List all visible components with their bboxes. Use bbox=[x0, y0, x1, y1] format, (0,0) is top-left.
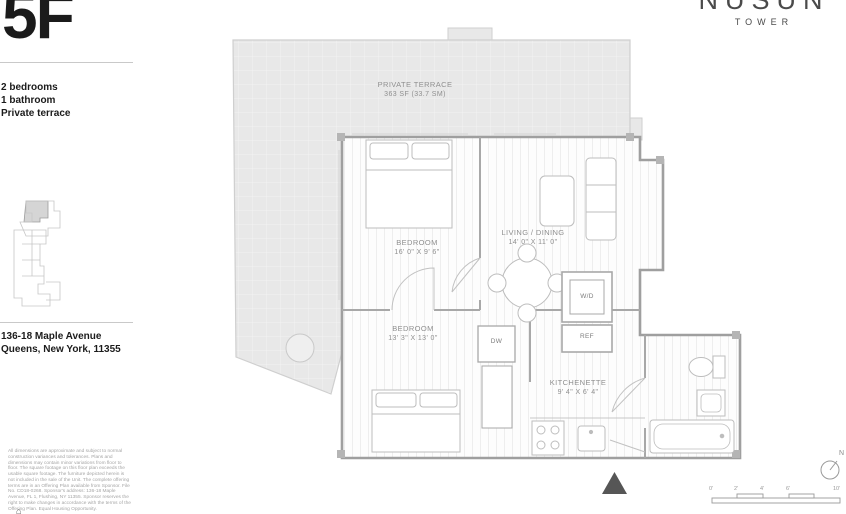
living-dining-label: LIVING / DINING 14' 0" X 11' 0" bbox=[468, 228, 598, 248]
bedroom2-bed bbox=[372, 390, 460, 452]
legal-disclaimer: All dimensions are approximate and subje… bbox=[8, 449, 132, 512]
terrace-label: PRIVATE TERRACE 363 SF (33.7 SM) bbox=[330, 80, 500, 100]
terrace-table bbox=[286, 334, 314, 362]
washer-dryer-label: W/D bbox=[562, 293, 612, 300]
room-dims: 13' 3" X 13' 0" bbox=[348, 334, 478, 343]
terrace-area: 363 SF (33.7 SM) bbox=[330, 90, 500, 99]
keyplan-unit-highlight bbox=[24, 201, 48, 222]
kitchenette-label: KITCHENETTE 9' 4" X 6' 4" bbox=[513, 378, 643, 398]
summary-bedrooms: 2 bedrooms bbox=[1, 81, 71, 94]
scale-tick: 6' bbox=[786, 486, 790, 492]
bedroom1-bed bbox=[366, 140, 452, 228]
hall-closet bbox=[482, 366, 512, 428]
unit-summary: 2 bedrooms 1 bathroom Private terrace bbox=[1, 81, 71, 121]
divider bbox=[0, 322, 133, 323]
bedroom2-label: BEDROOM 13' 3" X 13' 0" bbox=[348, 324, 478, 344]
brand-lockup: NUSUN TOWER bbox=[688, 0, 840, 27]
lounge-chair bbox=[540, 176, 574, 226]
scale-tick: 10' bbox=[833, 486, 840, 492]
floorplan-page: PRIVATE TERRACE 363 SF (33.7 SM) BEDROOM… bbox=[0, 0, 846, 514]
entry-arrow bbox=[602, 472, 627, 494]
room-name: LIVING / DINING bbox=[468, 228, 598, 238]
scale-bar bbox=[712, 494, 840, 503]
building-address: 136-18 Maple Avenue Queens, New York, 11… bbox=[1, 330, 121, 356]
wd-closet bbox=[562, 272, 612, 352]
scale-tick: 2' bbox=[734, 486, 738, 492]
room-name: BEDROOM bbox=[352, 238, 482, 248]
stove bbox=[532, 421, 564, 455]
keyplan-diagram bbox=[6, 192, 64, 312]
toilet bbox=[689, 358, 713, 377]
kitchen-sink bbox=[578, 426, 605, 451]
brand-name: NUSUN bbox=[688, 0, 840, 14]
bedroom1-label: BEDROOM 16' 0" X 9' 6" bbox=[352, 238, 482, 258]
room-name: BEDROOM bbox=[348, 324, 478, 334]
summary-terrace: Private terrace bbox=[1, 107, 71, 120]
room-name: KITCHENETTE bbox=[513, 378, 643, 388]
equal-housing-icon: ⌂ bbox=[16, 507, 21, 514]
brand-subtitle: TOWER bbox=[688, 17, 840, 27]
unit-number: 5F bbox=[2, 0, 73, 48]
compass-icon bbox=[821, 461, 839, 479]
refrigerator-label: REF bbox=[562, 333, 612, 340]
scale-tick: 4' bbox=[760, 486, 764, 492]
dishwasher-label: DW bbox=[478, 338, 515, 345]
room-dims: 14' 0" X 11' 0" bbox=[468, 238, 598, 247]
room-dims: 16' 0" X 9' 6" bbox=[352, 248, 482, 257]
scale-tick: 0' bbox=[709, 486, 713, 492]
address-city: Queens, New York, 11355 bbox=[1, 343, 121, 356]
divider bbox=[0, 62, 133, 63]
compass-north-label: N bbox=[839, 450, 844, 457]
address-street: 136-18 Maple Avenue bbox=[1, 330, 121, 343]
summary-bathrooms: 1 bathroom bbox=[1, 94, 71, 107]
room-dims: 9' 4" X 6' 4" bbox=[513, 388, 643, 397]
terrace-name: PRIVATE TERRACE bbox=[330, 80, 500, 90]
